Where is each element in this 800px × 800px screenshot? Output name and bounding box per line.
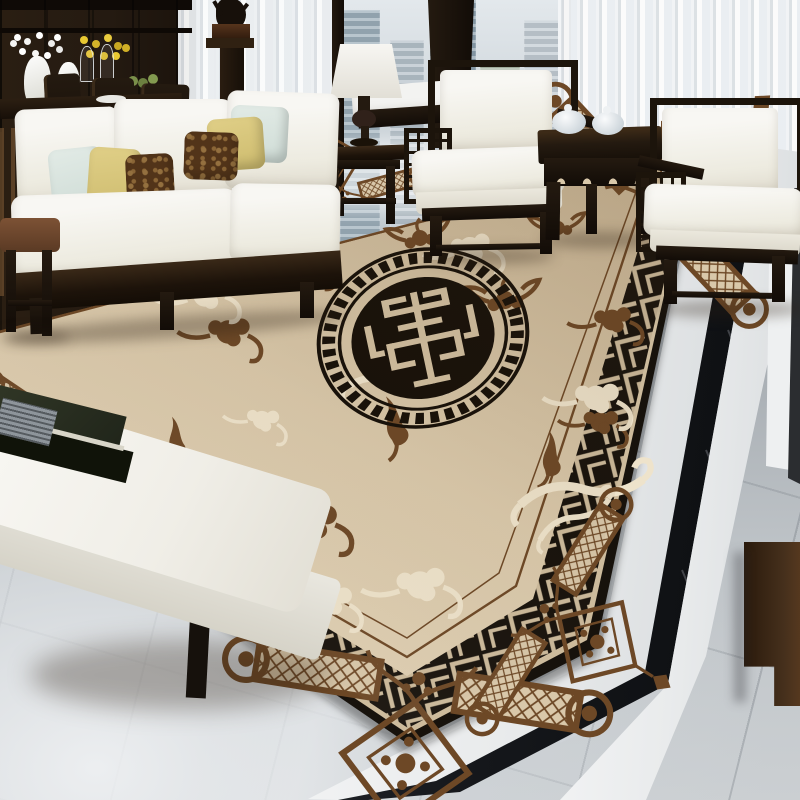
tea-bowl (592, 112, 624, 135)
tea-table-leg (586, 184, 597, 234)
stool-leg (6, 250, 16, 332)
side-table-shelf (334, 198, 396, 204)
wood-block-shadow (734, 552, 746, 702)
pillow-brown-patterned (183, 131, 239, 181)
stool-shadow (0, 330, 70, 344)
armchair-leg (772, 256, 785, 302)
sofa-leg (300, 282, 314, 318)
tea-table-leg (545, 182, 560, 240)
tea-bowl (552, 110, 586, 134)
stool-leg (42, 250, 52, 336)
chair-shadow (656, 300, 800, 318)
armchair-leg (664, 260, 677, 304)
side-table-leg (386, 166, 395, 224)
armchair-back-cushion (440, 70, 552, 154)
sofa-leg (160, 292, 174, 330)
tea-bowl-knob (564, 104, 572, 112)
living-room-rug-photo (0, 0, 800, 800)
stool-stretcher (8, 300, 52, 306)
lamp-shade (330, 44, 402, 98)
stool-seat (0, 218, 60, 252)
tea-bowl-knob (603, 106, 611, 114)
